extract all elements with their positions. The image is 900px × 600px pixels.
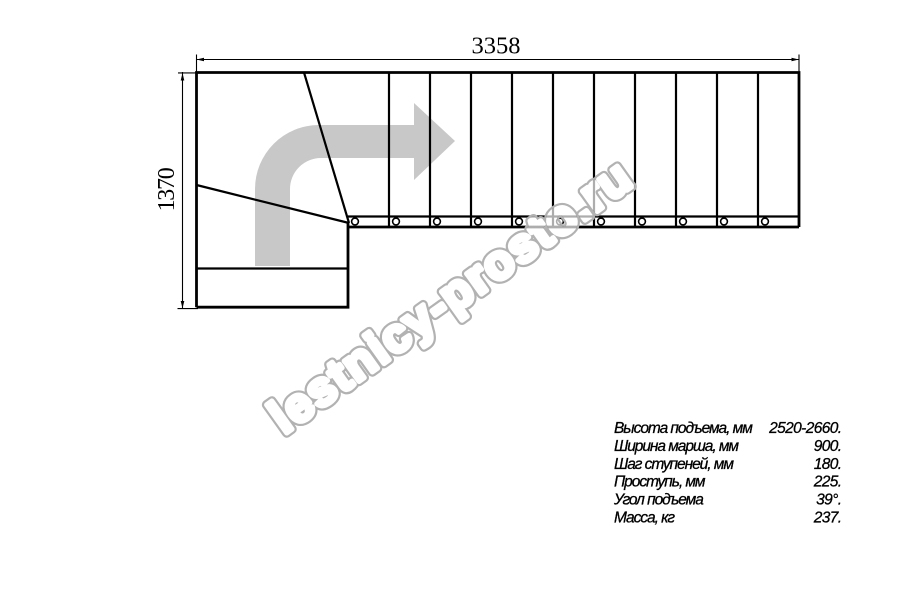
svg-text:1370: 1370 bbox=[154, 167, 180, 211]
svg-text:Высота подъема, мм: Высота подъема, мм bbox=[614, 420, 753, 437]
svg-text:Ширина марша, мм: Ширина марша, мм bbox=[614, 438, 739, 455]
svg-text:Угол подъема: Угол подъема bbox=[613, 492, 704, 509]
svg-text:225.: 225. bbox=[813, 474, 842, 491]
svg-text:Шаг ступеней, мм: Шаг ступеней, мм bbox=[614, 456, 734, 473]
svg-text:Проступь, мм: Проступь, мм bbox=[614, 474, 706, 491]
svg-text:39°.: 39°. bbox=[816, 492, 841, 509]
svg-text:3358: 3358 bbox=[472, 33, 521, 60]
svg-text:900.: 900. bbox=[814, 438, 842, 455]
svg-text:Масса, кг: Масса, кг bbox=[614, 510, 675, 527]
svg-text:lestnicy-prosto.ru: lestnicy-prosto.ru bbox=[260, 150, 643, 444]
svg-text:237.: 237. bbox=[813, 510, 842, 527]
svg-text:2520-2660.: 2520-2660. bbox=[768, 420, 841, 437]
svg-text:180.: 180. bbox=[814, 456, 842, 473]
